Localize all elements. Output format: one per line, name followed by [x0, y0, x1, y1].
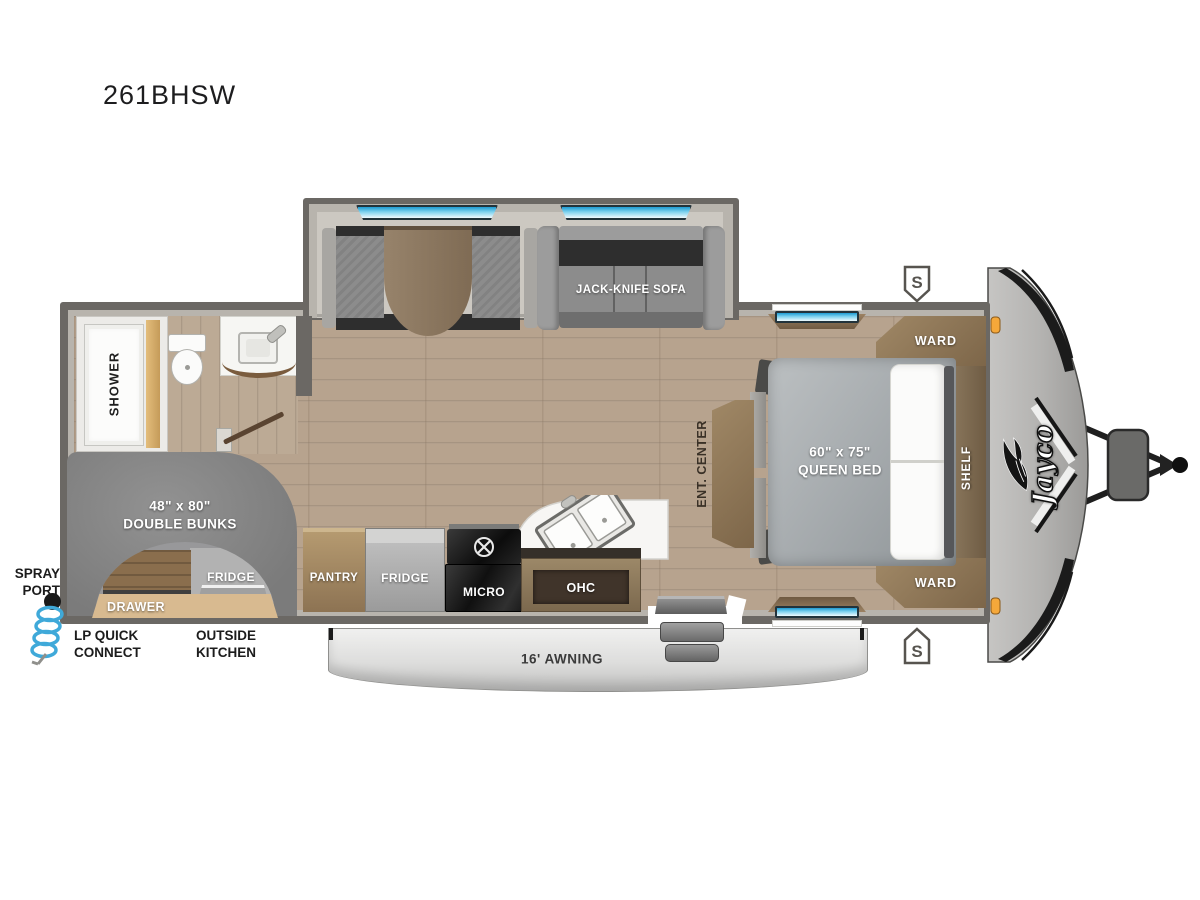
dinette-bench-right: [472, 236, 520, 318]
bunk-name-label: DOUBLE BUNKS: [123, 517, 237, 532]
sofa-back: [559, 240, 703, 266]
fridge-label: FRIDGE: [381, 571, 429, 585]
dinette-window: [356, 205, 498, 220]
micro-label: MICRO: [463, 585, 505, 599]
shelf-label: SHELF: [959, 446, 973, 490]
clearance-light-bottom-icon: [991, 598, 1000, 614]
outside-drawer-label: DRAWER: [107, 600, 165, 614]
sofa-arm-right: [703, 226, 725, 330]
entry-step-2: [665, 644, 719, 662]
speaker-bottom-letter: S: [911, 642, 922, 661]
dinette-arm-right: [524, 228, 538, 328]
outside-kitchen-label: OUTSIDE KITCHEN: [196, 628, 256, 662]
pantry-cabinet: [303, 528, 365, 612]
propane-cover: [1108, 430, 1148, 500]
awning-label: 16' AWNING: [521, 652, 603, 667]
bedroom-window-bottom: [775, 606, 859, 618]
ent-center-label: ENT. CENTER: [695, 420, 709, 507]
floorplan-canvas: 261BHSW Jayco 16' AWNING: [0, 0, 1200, 900]
outside-fridge-label: FRIDGE: [207, 570, 255, 584]
brand-wordmark: Jayco: [1030, 425, 1057, 505]
bedroom-window-sill-bottom: [772, 620, 862, 627]
lp-line1: LP QUICK: [74, 628, 141, 645]
sofa-front: [559, 312, 703, 328]
spray-port-line1: SPRAY: [0, 566, 60, 583]
bedroom-window-sill-top: [772, 304, 862, 311]
bedroom-window-top: [775, 311, 859, 323]
speaker-top-letter: S: [911, 273, 922, 292]
awning-end-right: [860, 628, 864, 640]
bed-size-label: 60" x 75": [809, 445, 870, 460]
outside-cabinet: [103, 550, 191, 592]
bath-sink-basin: [246, 339, 270, 357]
sofa-window: [560, 205, 692, 220]
entry-step-1: [660, 622, 724, 642]
dinette-arm-left: [322, 228, 336, 328]
speaker-badge-bottom: S: [902, 626, 932, 666]
wardrobe-bottom-label: WARD: [915, 576, 957, 590]
dinette-bench-left: [336, 236, 384, 318]
speaker-badge-top: S: [902, 264, 932, 304]
shower-door: [146, 320, 160, 448]
bed-name-label: QUEEN BED: [798, 463, 882, 478]
sofa-label: JACK-KNIFE SOFA: [576, 284, 686, 296]
burner-fan-icon: [473, 536, 495, 558]
bath-wall: [296, 316, 312, 396]
bed-headboard-edge: [944, 366, 954, 558]
awning-end-left: [329, 628, 333, 640]
page-title: 261BHSW: [103, 80, 236, 111]
hitch-ball-icon: [1172, 457, 1188, 473]
fridge-top: [366, 529, 444, 543]
shower-label: SHOWER: [107, 352, 122, 417]
ent-center-cabinet: [712, 400, 754, 548]
entry-door-leaf: [655, 596, 727, 614]
ohc-label: OHC: [567, 581, 596, 595]
ok-line1: OUTSIDE: [196, 628, 256, 645]
sofa-arm-left: [537, 226, 559, 330]
pantry-label: PANTRY: [310, 572, 358, 584]
brand-logo: Jayco: [990, 405, 1066, 525]
lp-line2: CONNECT: [74, 645, 141, 662]
clearance-light-top-icon: [991, 317, 1000, 333]
lp-quick-connect-label: LP QUICK CONNECT: [74, 628, 141, 662]
pillow-divider: [891, 460, 947, 463]
lp-hose-coil-icon: [26, 604, 70, 668]
wardrobe-top-label: WARD: [915, 334, 957, 348]
bunk-size-label: 48" x 80": [149, 499, 210, 514]
jayco-bird-icon: [1000, 430, 1030, 500]
ok-line2: KITCHEN: [196, 645, 256, 662]
toilet-flush-icon: [185, 365, 190, 370]
